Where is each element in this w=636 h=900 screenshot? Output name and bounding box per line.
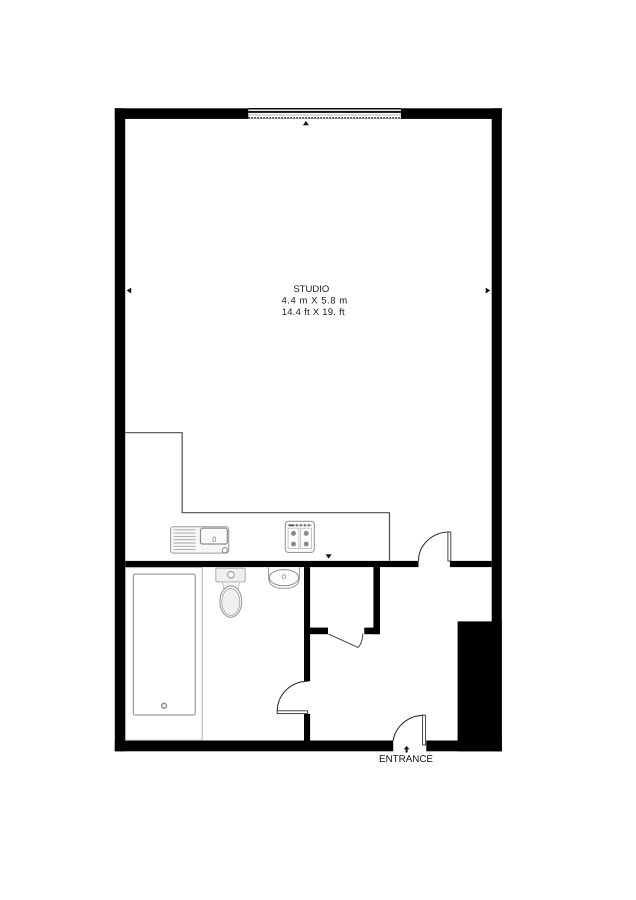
svg-text:ENTRANCE: ENTRANCE (379, 754, 433, 765)
svg-text:4.4 m X 5.8 m: 4.4 m X 5.8 m (281, 296, 347, 307)
svg-text:14.4 ft X 19. ft: 14.4 ft X 19. ft (282, 307, 345, 318)
svg-text:STUDIO: STUDIO (293, 284, 329, 295)
